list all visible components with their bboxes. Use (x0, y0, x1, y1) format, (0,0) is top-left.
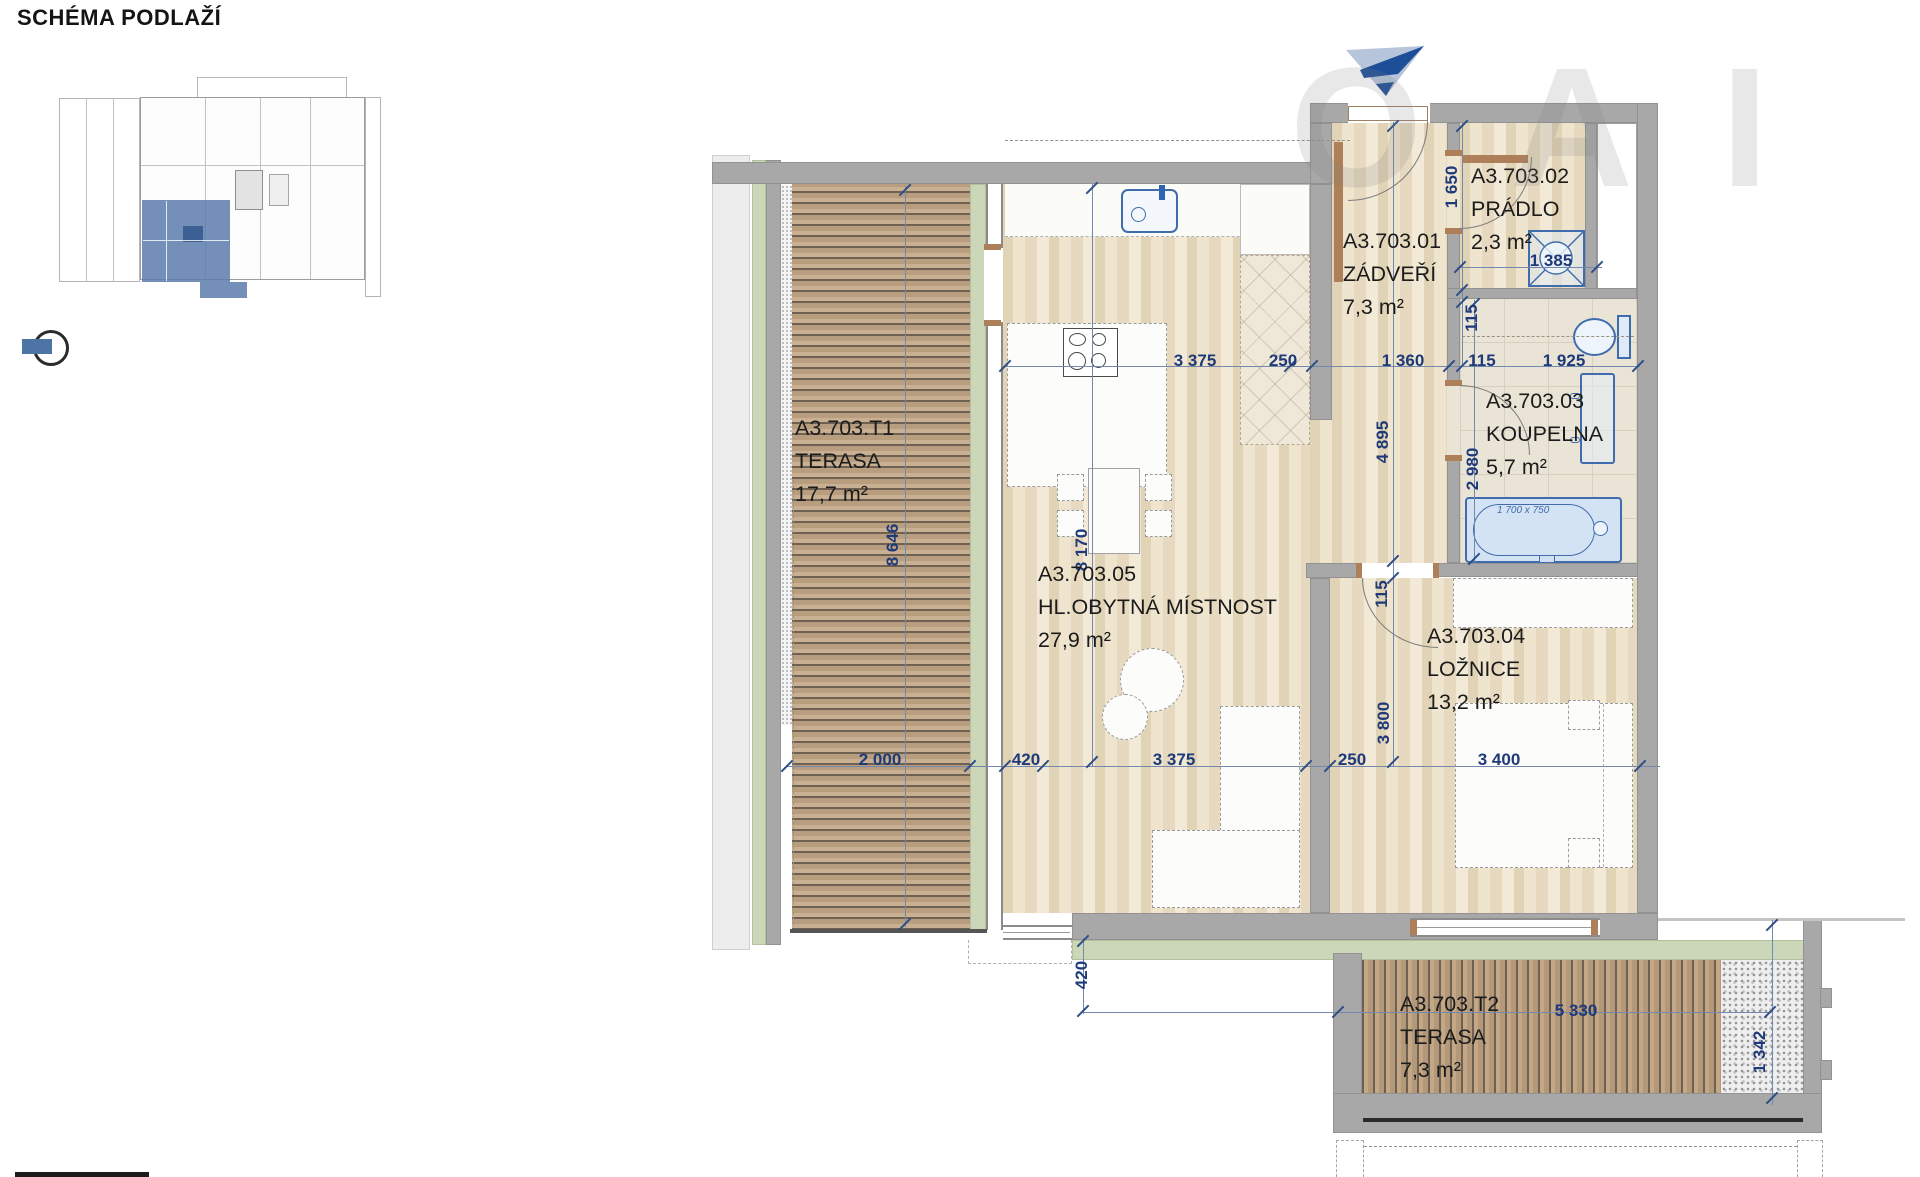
scale-bar (15, 1172, 149, 1177)
green-strip-bottom (1072, 940, 1822, 960)
site-line (1658, 918, 1905, 921)
entry-mat (1240, 255, 1310, 445)
dim-label: 1 342 (1750, 1031, 1770, 1074)
sofa-section (1220, 706, 1300, 831)
shaft (1597, 123, 1637, 298)
room-area: 27,9 m² (1038, 624, 1277, 657)
room-area: 2,3 m² (1471, 226, 1569, 259)
wall (1433, 563, 1658, 577)
dim-label: 115 (1462, 304, 1482, 331)
thumb-top-block (197, 77, 347, 98)
dim-label: 2 000 (859, 750, 902, 770)
room-id: A3.703.02 (1471, 160, 1569, 193)
wall (1637, 103, 1658, 913)
room-id: A3.703.01 (1343, 225, 1441, 258)
entrance-door-leaf (1348, 106, 1428, 121)
pouf (1102, 694, 1148, 740)
dim-label: 250 (1338, 750, 1366, 770)
terrace1-bottom-edge (790, 929, 987, 933)
bathroom-door-opening (1447, 385, 1460, 455)
hall-closet (1334, 142, 1343, 282)
position-marker-bar (22, 339, 52, 354)
thumb-stairs (269, 174, 289, 206)
green-strip-left (752, 160, 766, 945)
bathtub-size-label: 1 700 x 750 (1497, 505, 1549, 516)
room-label-koupelna: A3.703.03 KOUPELNA 5,7 m² (1486, 385, 1603, 484)
room-area: 17,7 m² (795, 478, 894, 511)
room-id: A3.703.05 (1038, 558, 1277, 591)
dim-label: 3 800 (1374, 702, 1394, 745)
bathtub: 1 700 x 750 (1465, 497, 1622, 563)
dim-label: 420 (1012, 750, 1040, 770)
dim-label: 2 980 (1463, 448, 1483, 491)
dim-label: 3 375 (1153, 750, 1196, 770)
room-area: 13,2 m² (1427, 686, 1525, 719)
terrace1-decking (792, 184, 970, 930)
dim-label: 3 375 (1174, 351, 1217, 371)
dim-label: 420 (1072, 961, 1092, 989)
dim-label: 115 (1372, 580, 1392, 607)
dim-label: 1 360 (1382, 351, 1425, 371)
sink-drain (1131, 207, 1146, 222)
overview-thumbnail (55, 70, 430, 305)
terrace-left-wall (766, 160, 781, 945)
wall (1820, 1060, 1832, 1080)
terrace-door-opening (984, 248, 1005, 322)
kitchen-tall-cabinet (1240, 184, 1310, 255)
chair (1145, 510, 1172, 537)
dim-label: 4 895 (1373, 421, 1393, 464)
dim-label: 1 650 (1442, 166, 1462, 209)
wall (1820, 988, 1832, 1008)
room-name: HL.OBYTNÁ MÍSTNOST (1038, 591, 1277, 624)
room-id: A3.703.03 (1486, 385, 1603, 418)
page-title: SCHÉMA PODLAŽÍ (17, 5, 221, 31)
bed (1455, 703, 1633, 868)
thumb-right-wing (365, 97, 381, 297)
room-id: A3.703.T2 (1400, 988, 1499, 1021)
dim-label: 115 (1468, 351, 1495, 371)
slab-edge (968, 940, 1072, 964)
room-name: TERASA (795, 445, 894, 478)
chair (1057, 474, 1084, 501)
room-id: A3.703.04 (1427, 620, 1525, 653)
room-label-loznice: A3.703.04 LOŽNICE 13,2 m² (1427, 620, 1525, 719)
room-name: LOŽNICE (1427, 653, 1525, 686)
room-label-obytna: A3.703.05 HL.OBYTNÁ MÍSTNOST 27,9 m² (1038, 558, 1277, 657)
chair (1145, 474, 1172, 501)
cooktop (1063, 328, 1118, 377)
room-label-terasa1: A3.703.T1 TERASA 17,7 m² (795, 412, 894, 511)
gravel-strip (781, 185, 792, 725)
dim-label: 8 646 (883, 524, 903, 567)
bedroom-window (1410, 918, 1600, 937)
dim-label: 3 400 (1478, 750, 1521, 770)
dining-table (1088, 468, 1140, 554)
dim-label: 1 925 (1543, 351, 1586, 371)
north-arrow-icon (1346, 46, 1426, 98)
floorplan-page: SCHÉMA PODLAŽÍ (0, 0, 1920, 1177)
room-name: PRÁDLO (1471, 193, 1569, 226)
living-window (1003, 925, 1072, 940)
wall (712, 162, 1332, 184)
railing-line (1363, 1118, 1803, 1122)
terrace2-bottom-wall (1333, 1093, 1822, 1133)
room-name: TERASA (1400, 1021, 1499, 1054)
thumb-left-wing (59, 98, 140, 282)
room-area: 7,3 m² (1400, 1054, 1499, 1087)
room-label-pradlo: A3.703.02 PRÁDLO 2,3 m² (1471, 160, 1569, 259)
room-area: 7,3 m² (1343, 291, 1441, 324)
nightstand (1568, 838, 1600, 868)
room-name: KOUPELNA (1486, 418, 1603, 451)
room-name: ZÁDVEŘÍ (1343, 258, 1441, 291)
room-label-zadveri: A3.703.01 ZÁDVEŘÍ 7,3 m² (1343, 225, 1441, 324)
dim-label: 5 330 (1555, 1001, 1598, 1021)
wall (1310, 123, 1332, 184)
sink-faucet (1159, 185, 1165, 200)
wall (1310, 578, 1330, 913)
toilet-tank (1617, 315, 1631, 359)
room-id: A3.703.T1 (795, 412, 894, 445)
kitchen-sink (1121, 189, 1178, 233)
passage-floor (1310, 420, 1334, 578)
pier-outline (1336, 1140, 1364, 1177)
room-area: 5,7 m² (1486, 451, 1603, 484)
wall (1306, 563, 1362, 578)
thumb-highlighted-terrace (200, 282, 247, 298)
sofa-section (1152, 830, 1300, 908)
wall (1310, 184, 1332, 420)
dim-label: 250 (1269, 351, 1297, 371)
thumb-core (235, 170, 263, 210)
room-label-terasa2: A3.703.T2 TERASA 7,3 m² (1400, 988, 1499, 1087)
wall (1447, 288, 1637, 299)
pier-outline (1797, 1140, 1823, 1177)
nightstand (1568, 700, 1600, 730)
facade-strip (712, 155, 750, 950)
